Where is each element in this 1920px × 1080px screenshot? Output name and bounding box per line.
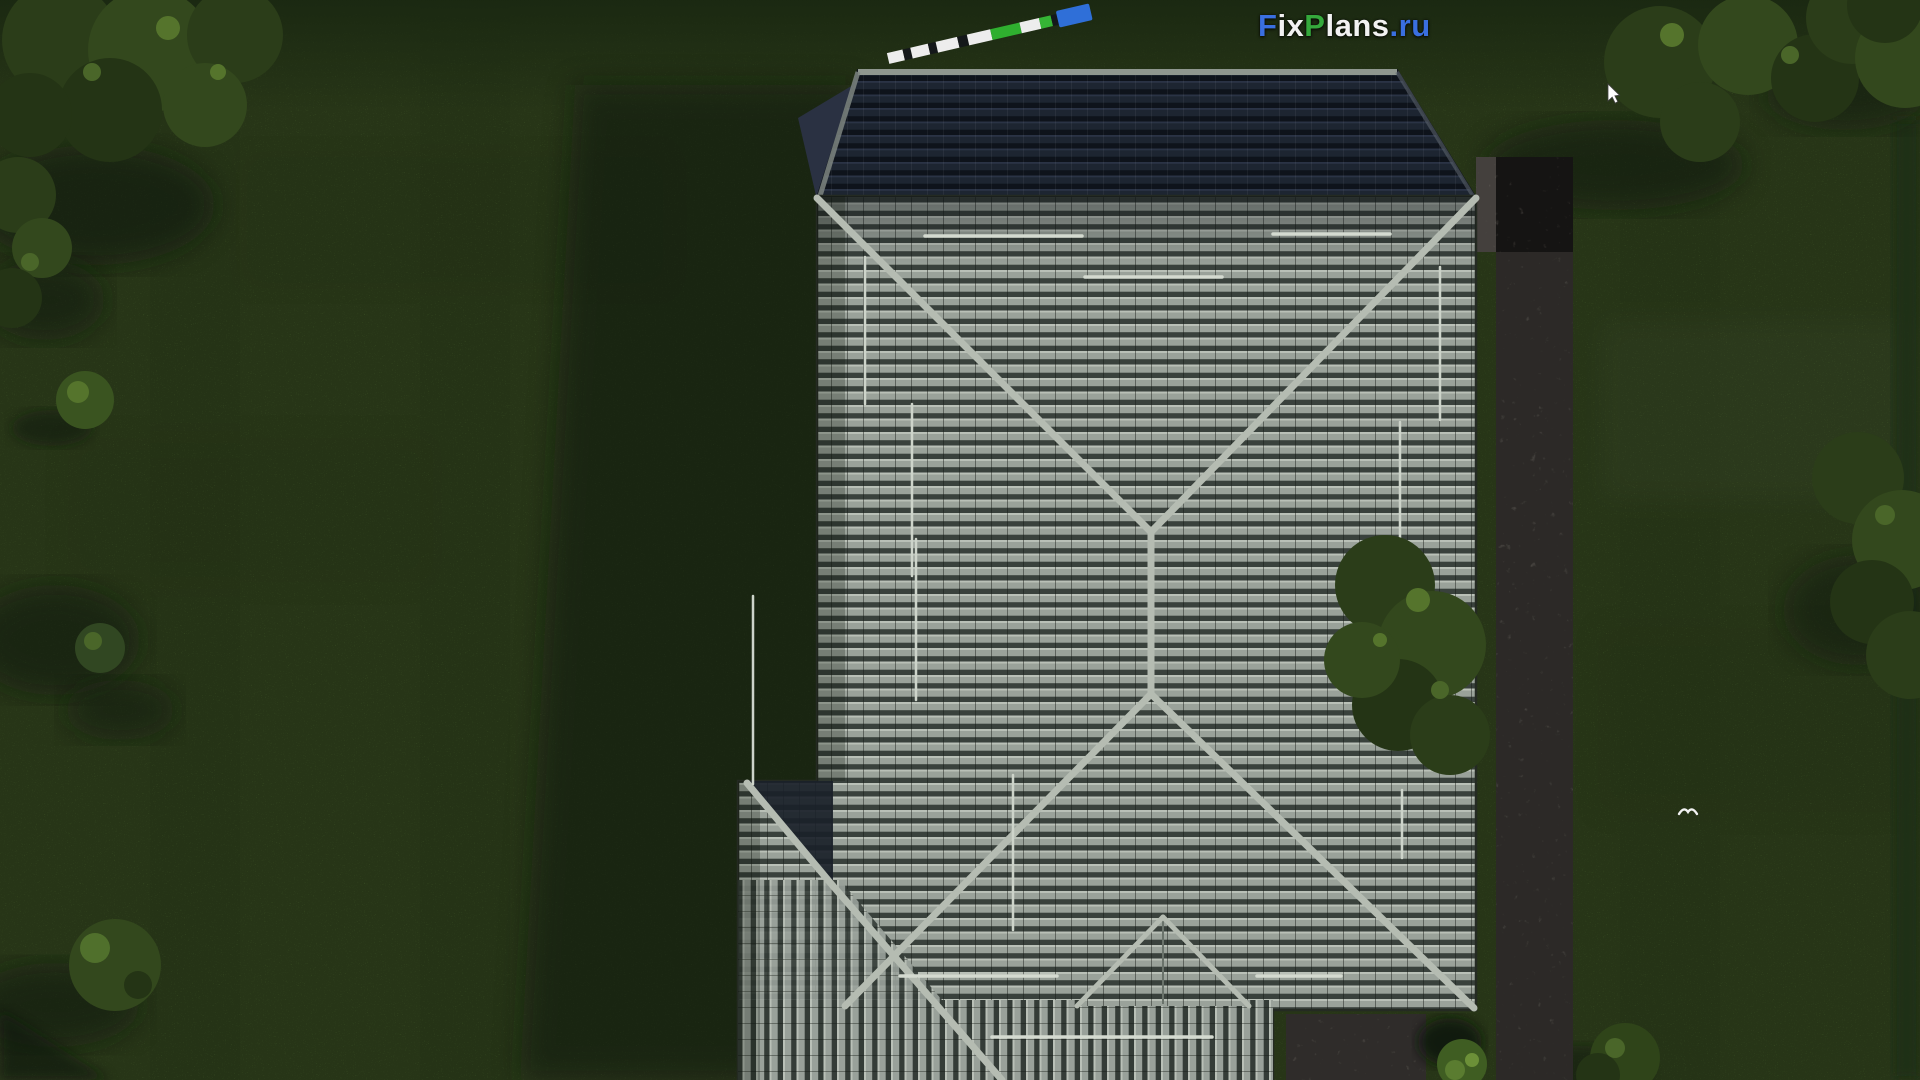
aerial-render: FixPlans.ru (0, 0, 1920, 1080)
logo-part: P (1304, 8, 1325, 43)
scale-bar-segment (967, 29, 993, 45)
roof-dark-section (817, 70, 1476, 198)
scale-bar-segment (1019, 18, 1041, 33)
logo-part: .ru (1390, 8, 1431, 43)
bush-left-mid (75, 623, 125, 673)
scale-bar-segment (990, 22, 1022, 39)
watermark-logo: FixPlans.ru (1258, 8, 1431, 44)
logo-part: ix (1277, 8, 1304, 43)
logo-part: F (1258, 8, 1277, 43)
scale-bar-segment (935, 36, 959, 52)
bush-left (56, 371, 114, 429)
logo-part: lans (1325, 8, 1389, 43)
tree-bottom-left (69, 919, 161, 1011)
scale-bar-segment (910, 43, 930, 58)
scene-canvas (0, 0, 1920, 1080)
patio-bottom-right (1286, 1014, 1426, 1080)
